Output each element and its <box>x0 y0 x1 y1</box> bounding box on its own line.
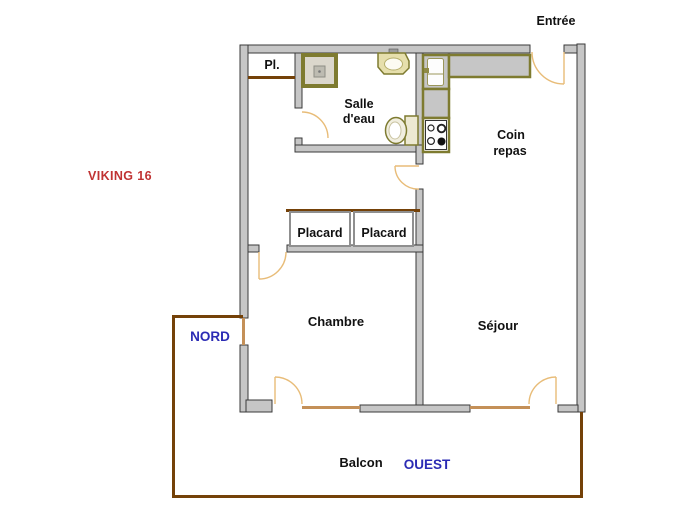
stove-burner <box>428 138 435 145</box>
shower-icon <box>303 55 336 86</box>
window-balcony-left <box>302 406 360 409</box>
wall-bottom-mid <box>360 405 470 412</box>
balcony-rail-right <box>580 412 583 498</box>
shower-drain-dot <box>318 70 321 73</box>
window-balcony-right <box>470 406 530 409</box>
stove-icon <box>423 118 449 152</box>
balcony-label: Balcon <box>339 455 382 470</box>
entrance-door-arc <box>532 52 564 84</box>
living-balcony-door-arc <box>529 377 556 404</box>
wall-top-entrance-jamb <box>564 45 578 53</box>
placard-left-label: Placard <box>297 226 342 240</box>
washbasin-icon <box>378 49 409 74</box>
kitchen-door-arc <box>395 166 419 189</box>
balcony-rail-left <box>172 315 175 498</box>
wall-left-upper <box>240 45 248 318</box>
toilet-icon <box>386 116 419 145</box>
sink-basin <box>428 59 444 86</box>
counter-column <box>423 89 449 118</box>
bathroom-label-line1: Salle <box>344 97 373 111</box>
balcony-rail-bottom <box>172 495 583 498</box>
north-label: NORD <box>190 329 230 344</box>
sink-faucet <box>424 68 429 73</box>
living-label: Séjour <box>478 318 518 333</box>
washbasin-bowl <box>385 58 403 70</box>
plan-title: VIKING 16 <box>88 169 152 183</box>
entrance-label: Entrée <box>537 14 576 28</box>
bedroom-balcony-door-arc <box>275 377 302 404</box>
wall-bottom-left-corner <box>246 400 272 412</box>
closet-pl-line <box>248 76 295 79</box>
wall-bottom-right-corner <box>558 405 578 412</box>
placard-right-label: Placard <box>361 226 406 240</box>
stove-body <box>423 118 449 152</box>
dining-label-line1: Coin <box>497 128 525 142</box>
dining-label-line2: repas <box>493 144 526 158</box>
balcony-rail-top <box>172 315 243 318</box>
bedroom-label: Chambre <box>308 314 364 329</box>
wall-bathroom-bottom <box>295 145 423 152</box>
floor-plan-svg: Entrée VIKING 16 Pl. Salle d'eau Coin re… <box>0 0 680 527</box>
closet-pl-label: Pl. <box>264 58 279 72</box>
kitchen-sink-icon <box>423 55 449 89</box>
toilet-bowl-inner <box>389 122 401 139</box>
wall-right <box>577 44 585 412</box>
wall-closet-partition <box>295 53 302 108</box>
stove-burner <box>438 125 446 133</box>
west-label: OUEST <box>404 457 451 472</box>
stove-burner <box>438 138 446 146</box>
stove-burner <box>428 125 434 131</box>
bathroom-label-line2: d'eau <box>343 112 375 126</box>
bedroom-door-arc <box>259 252 286 279</box>
counter-top-run <box>449 55 530 77</box>
floor-plan-canvas: Entrée VIKING 16 Pl. Salle d'eau Coin re… <box>0 0 680 527</box>
bathroom-door-arc <box>302 112 328 138</box>
wall-top <box>240 45 530 53</box>
window-north <box>242 318 245 345</box>
wall-bedroom-stub <box>248 245 259 252</box>
wall-room-divider <box>416 189 423 405</box>
